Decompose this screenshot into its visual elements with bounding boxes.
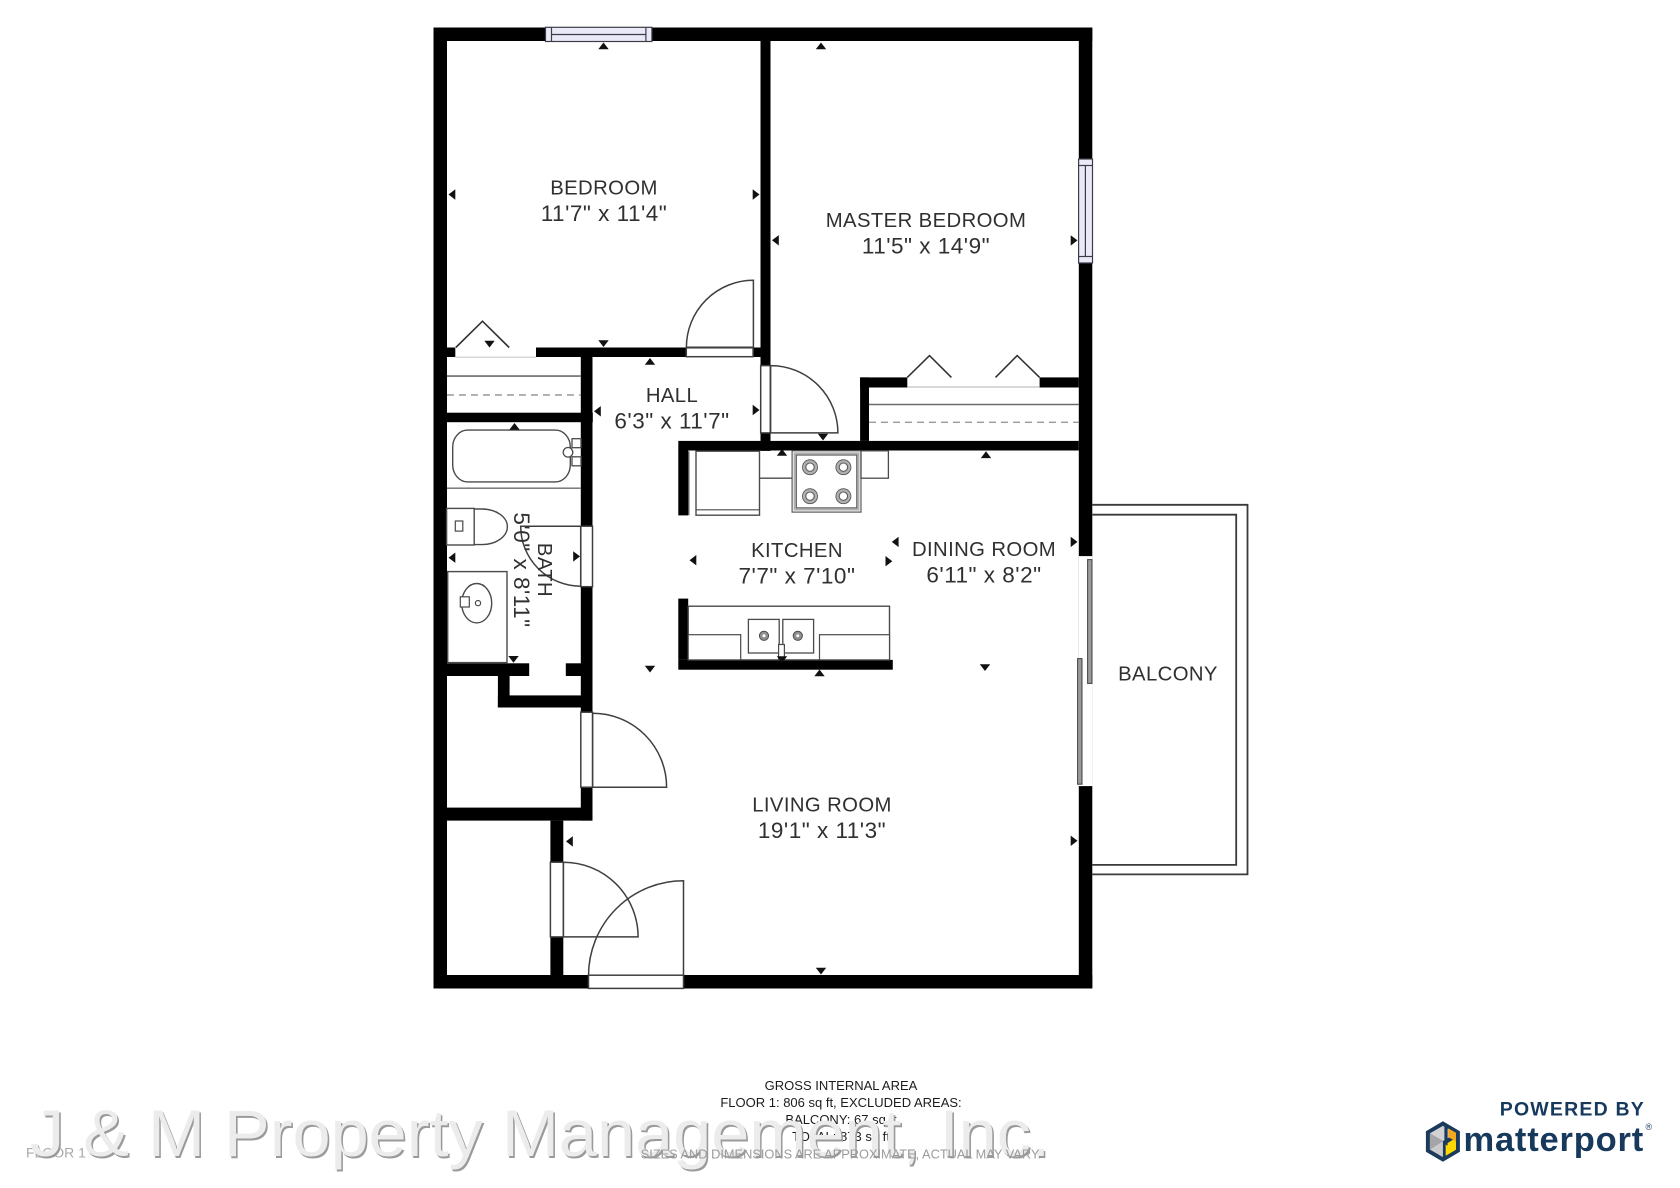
svg-text:SIZES AND DIMENSIONS ARE APPRO: SIZES AND DIMENSIONS ARE APPROXIMATE, AC… xyxy=(641,1147,1042,1162)
svg-text:7'7" x 7'10": 7'7" x 7'10" xyxy=(739,564,856,589)
svg-text:19'1" x 11'3": 19'1" x 11'3" xyxy=(758,818,886,843)
svg-text:HALL: HALL xyxy=(646,385,698,407)
svg-text:GROSS INTERNAL AREA: GROSS INTERNAL AREA xyxy=(765,1078,918,1093)
svg-text:KITCHEN: KITCHEN xyxy=(751,540,843,562)
svg-text:LIVING ROOM: LIVING ROOM xyxy=(752,794,892,816)
svg-text:BEDROOM: BEDROOM xyxy=(550,177,658,199)
svg-text:MASTER BEDROOM: MASTER BEDROOM xyxy=(826,210,1027,232)
svg-text:6'11" x 8'2": 6'11" x 8'2" xyxy=(926,563,1041,588)
svg-text:11'7" x 11'4": 11'7" x 11'4" xyxy=(541,201,668,226)
svg-text:6'3" x 11'7": 6'3" x 11'7" xyxy=(614,409,729,434)
svg-text:5'0" x 8'11": 5'0" x 8'11" xyxy=(509,512,534,627)
svg-text:BATH: BATH xyxy=(533,543,555,597)
svg-text:11'5" x 14'9": 11'5" x 14'9" xyxy=(862,234,990,259)
svg-text:POWERED BY: POWERED BY xyxy=(1500,1099,1645,1121)
svg-text:DINING ROOM: DINING ROOM xyxy=(912,539,1056,561)
svg-text:matterport: matterport xyxy=(1463,1121,1644,1159)
svg-text:®: ® xyxy=(1646,1122,1653,1132)
svg-text:BALCONY: BALCONY xyxy=(1118,663,1218,685)
